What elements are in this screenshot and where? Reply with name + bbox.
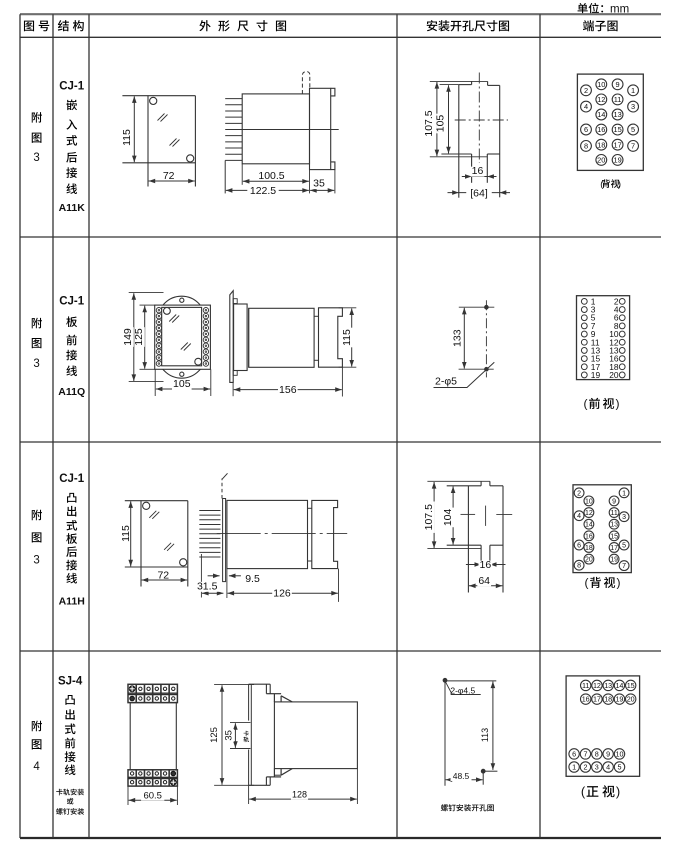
svg-text:): ) <box>617 576 621 590</box>
svg-text:9: 9 <box>606 749 610 758</box>
svg-text:156: 156 <box>279 384 297 396</box>
svg-text:7: 7 <box>622 563 626 570</box>
svg-text:13: 13 <box>613 110 621 119</box>
svg-text:16: 16 <box>585 533 593 540</box>
svg-text:5: 5 <box>631 125 635 134</box>
svg-text:11: 11 <box>614 95 622 104</box>
svg-text:31.5: 31.5 <box>197 580 218 592</box>
svg-text:10: 10 <box>585 498 593 505</box>
svg-text:A11K: A11K <box>59 202 86 214</box>
svg-text:CJ-1: CJ-1 <box>59 473 85 485</box>
svg-text:3: 3 <box>33 554 39 566</box>
svg-text:16: 16 <box>480 559 492 571</box>
svg-text:15: 15 <box>627 681 635 690</box>
svg-text:20: 20 <box>597 156 605 165</box>
svg-text:): ) <box>618 179 621 190</box>
svg-text:10: 10 <box>616 749 624 758</box>
svg-text:16: 16 <box>582 695 590 704</box>
svg-text:35: 35 <box>313 178 325 190</box>
svg-text:122.5: 122.5 <box>250 185 276 197</box>
svg-text:3: 3 <box>595 763 599 772</box>
svg-text:128: 128 <box>292 790 307 800</box>
svg-text:20: 20 <box>609 370 619 380</box>
svg-text:14: 14 <box>597 110 605 119</box>
svg-text:105: 105 <box>173 378 191 390</box>
svg-text:2: 2 <box>584 86 588 95</box>
svg-text:11: 11 <box>582 681 589 690</box>
svg-text:19: 19 <box>610 557 618 564</box>
svg-text:(: ( <box>584 397 588 411</box>
svg-text:9.5: 9.5 <box>245 573 260 585</box>
svg-text:A11Q: A11Q <box>58 386 85 398</box>
svg-text:(: ( <box>581 784 586 799</box>
svg-text:1: 1 <box>572 763 576 772</box>
svg-text:4: 4 <box>577 513 581 520</box>
svg-text:5: 5 <box>618 763 622 772</box>
svg-text:(: ( <box>585 576 589 590</box>
svg-text:16: 16 <box>597 125 605 134</box>
svg-text:6: 6 <box>572 749 576 758</box>
svg-text:9: 9 <box>612 498 616 505</box>
svg-text:115: 115 <box>120 525 132 542</box>
svg-text:2: 2 <box>577 490 581 497</box>
svg-text:12: 12 <box>593 681 601 690</box>
svg-text:7: 7 <box>583 749 587 758</box>
svg-text:A11H: A11H <box>59 595 85 607</box>
svg-text:107.5: 107.5 <box>423 110 435 136</box>
svg-text:115: 115 <box>121 129 133 146</box>
svg-text:133: 133 <box>452 329 464 347</box>
svg-text:8: 8 <box>577 563 581 570</box>
svg-text:18: 18 <box>585 545 593 552</box>
svg-text:20: 20 <box>585 557 593 564</box>
svg-text:18: 18 <box>604 695 612 704</box>
svg-text:15: 15 <box>613 125 621 134</box>
svg-text:14: 14 <box>585 522 593 529</box>
svg-text:12: 12 <box>585 510 593 517</box>
svg-text:): ) <box>616 784 620 799</box>
svg-text:CJ-1: CJ-1 <box>59 81 85 93</box>
svg-text:64: 64 <box>478 575 490 587</box>
svg-text:113: 113 <box>480 728 490 742</box>
svg-text:19: 19 <box>613 156 621 165</box>
svg-text:2: 2 <box>583 763 587 772</box>
svg-text:125: 125 <box>209 727 220 743</box>
svg-text:7: 7 <box>631 142 635 151</box>
svg-text:100.5: 100.5 <box>258 170 284 182</box>
svg-text:6: 6 <box>584 125 588 134</box>
svg-text:3: 3 <box>631 102 635 111</box>
svg-text:17: 17 <box>593 695 601 704</box>
svg-text:18: 18 <box>597 140 605 149</box>
svg-text:115: 115 <box>341 329 353 346</box>
svg-text:19: 19 <box>591 370 601 380</box>
svg-text:3: 3 <box>33 152 39 164</box>
svg-text:14: 14 <box>615 681 623 690</box>
svg-text:3: 3 <box>33 358 39 370</box>
svg-text:35: 35 <box>224 730 235 741</box>
svg-text:1: 1 <box>631 86 635 95</box>
svg-text:8: 8 <box>584 142 588 151</box>
svg-text:10: 10 <box>597 80 605 89</box>
svg-text:105: 105 <box>435 115 447 133</box>
svg-text:3: 3 <box>622 514 626 521</box>
svg-text:16: 16 <box>472 165 484 177</box>
svg-text:11: 11 <box>610 510 617 517</box>
svg-text:5: 5 <box>622 543 626 550</box>
svg-text:1: 1 <box>622 490 626 497</box>
svg-text:4: 4 <box>33 761 40 773</box>
svg-text:48.5: 48.5 <box>453 771 470 781</box>
svg-text:[64]: [64] <box>470 187 488 199</box>
svg-text:72: 72 <box>163 170 175 182</box>
svg-text:4: 4 <box>584 102 588 111</box>
svg-text:2-φ5: 2-φ5 <box>435 375 457 387</box>
svg-text:72: 72 <box>157 570 169 582</box>
svg-text:19: 19 <box>615 695 623 704</box>
svg-text:2-φ4.5: 2-φ4.5 <box>450 685 475 695</box>
svg-text:4: 4 <box>606 763 610 772</box>
svg-text:): ) <box>616 397 620 411</box>
svg-text:8: 8 <box>595 749 599 758</box>
svg-text:12: 12 <box>597 95 605 104</box>
svg-text:6: 6 <box>577 543 581 550</box>
svg-text:17: 17 <box>610 545 618 552</box>
svg-text:60.5: 60.5 <box>143 790 162 801</box>
svg-text:13: 13 <box>604 681 612 690</box>
svg-text:107.5: 107.5 <box>423 504 435 530</box>
svg-text:20: 20 <box>627 695 635 704</box>
svg-text:126: 126 <box>273 587 291 599</box>
svg-text:125: 125 <box>133 328 145 346</box>
svg-text:SJ-4: SJ-4 <box>58 675 83 687</box>
svg-text:CJ-1: CJ-1 <box>59 295 85 307</box>
svg-text:9: 9 <box>616 80 620 89</box>
svg-text:13: 13 <box>610 522 618 529</box>
svg-text:104: 104 <box>442 508 454 526</box>
svg-text:15: 15 <box>610 533 618 540</box>
svg-text:17: 17 <box>613 140 621 149</box>
